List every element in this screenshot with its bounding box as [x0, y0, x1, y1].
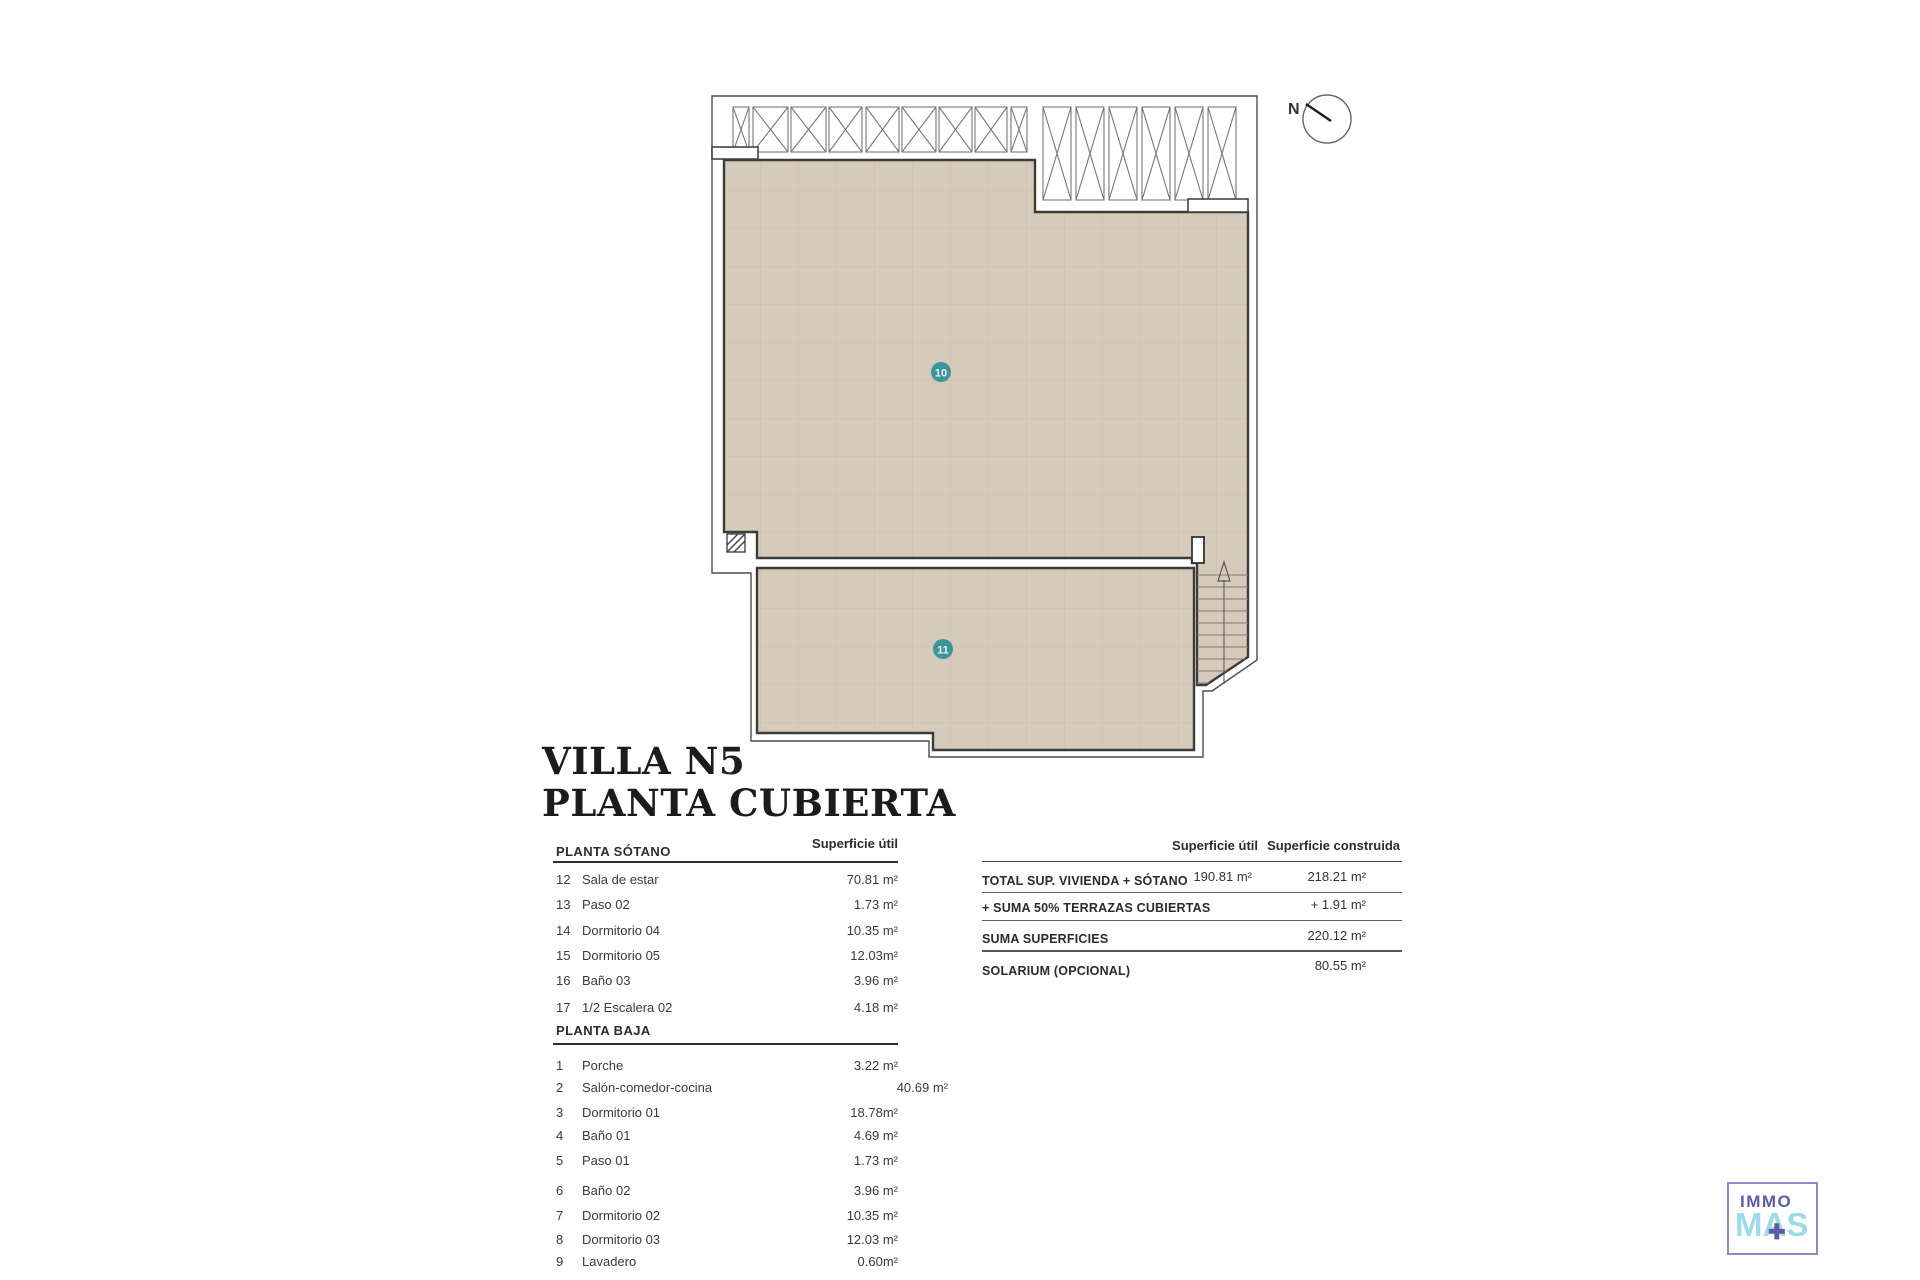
room-area: 70.81 m² [847, 872, 898, 887]
row-number: 5 [556, 1153, 563, 1168]
roof-area-11 [757, 568, 1194, 750]
room-name: Paso 01 [582, 1153, 630, 1168]
baja-section-header: PLANTA BAJA [556, 1023, 651, 1038]
table-row: 15 Dormitorio 05 12.03m² [553, 948, 898, 964]
summary-label: + SUMA 50% TERRAZAS CUBIERTAS [982, 901, 1210, 915]
summary-cons-value: 80.55 m² [1315, 958, 1366, 973]
summary-rule [982, 892, 1402, 893]
room-area: 0.60m² [858, 1254, 898, 1269]
summary-rule [982, 861, 1402, 862]
room-area: 4.69 m² [854, 1128, 898, 1143]
north-compass-icon: N [1288, 95, 1351, 143]
pergola-beams-left [733, 107, 1027, 152]
room-name: Paso 02 [582, 897, 630, 912]
summary-util-value: 190.81 m² [1193, 869, 1252, 884]
table-row: 7 Dormitorio 02 10.35 m² [553, 1208, 898, 1224]
room-name: Salón-comedor-cocina [582, 1080, 712, 1095]
table-row: 4 Baño 01 4.69 m² [553, 1128, 898, 1144]
roof-notch-top-right [1188, 199, 1248, 212]
room-name: Porche [582, 1058, 623, 1073]
summary-cons-value: 218.21 m² [1307, 869, 1366, 884]
summary-label: SUMA SUPERFICIES [982, 932, 1108, 946]
logo-plus-icon: ✚ [1768, 1220, 1786, 1245]
room-area: 3.96 m² [854, 1183, 898, 1198]
table-row: 1 Porche 3.22 m² [553, 1058, 898, 1074]
row-number: 6 [556, 1183, 563, 1198]
room-name: Sala de estar [582, 872, 659, 887]
roof-badge-11: 11 [933, 639, 953, 659]
table-row: 9 Lavadero 0.60m² [553, 1254, 898, 1270]
table-row: 13 Paso 02 1.73 m² [553, 897, 898, 913]
row-number: 16 [556, 973, 570, 988]
plan-sheet: 10 11 N VILLA N5 PLANTA CUBIERTA Superfi… [0, 0, 1920, 1280]
room-name: Dormitorio 03 [582, 1232, 660, 1247]
summary-cons-value: 220.12 m² [1307, 928, 1366, 943]
immomas-logo: IMMO MAS ✚ [1727, 1182, 1818, 1255]
summary-cons-value: + 1.91 m² [1311, 897, 1366, 912]
room-area: 10.35 m² [847, 923, 898, 938]
row-number: 7 [556, 1208, 563, 1223]
room-name: Baño 01 [582, 1128, 630, 1143]
row-number: 9 [556, 1254, 563, 1269]
sheet-title-line1: VILLA N5 [542, 740, 956, 782]
svg-text:10: 10 [935, 368, 947, 380]
roof-notch-top-left [712, 147, 758, 159]
room-name: Dormitorio 04 [582, 923, 660, 938]
sotano-section-header: PLANTA SÓTANO [556, 844, 671, 859]
room-area: 12.03 m² [847, 1232, 898, 1247]
room-name: Dormitorio 01 [582, 1105, 660, 1120]
row-number: 4 [556, 1128, 563, 1143]
baja-header-rule [553, 1043, 898, 1045]
summary-rule [982, 950, 1402, 952]
row-number: 1 [556, 1058, 563, 1073]
table-row: 5 Paso 01 1.73 m² [553, 1153, 898, 1169]
row-number: 15 [556, 948, 570, 963]
table-row: 14 Dormitorio 04 10.35 m² [553, 923, 898, 939]
room-name: Dormitorio 05 [582, 948, 660, 963]
room-name: Dormitorio 02 [582, 1208, 660, 1223]
summary-rule [982, 920, 1402, 921]
sheet-title: VILLA N5 PLANTA CUBIERTA [542, 740, 956, 824]
floor-plan-drawing: 10 11 N [0, 0, 1920, 1280]
summary-col-cons: Superficie construida [982, 838, 1400, 853]
table-row: 12 Sala de estar 70.81 m² [553, 872, 898, 888]
table-row: 6 Baño 02 3.96 m² [553, 1183, 898, 1199]
north-label: N [1288, 101, 1300, 118]
row-number: 8 [556, 1232, 563, 1247]
room-area: 18.78m² [850, 1105, 898, 1120]
table-row: 2 Salón-comedor-cocina 40.69 m² [553, 1080, 898, 1096]
summary-label: SOLARIUM (OPCIONAL) [982, 964, 1130, 978]
row-number: 12 [556, 872, 570, 887]
svg-text:11: 11 [937, 645, 949, 657]
row-number: 13 [556, 897, 570, 912]
room-area: 40.69 m² [897, 1080, 948, 1095]
room-name: Baño 02 [582, 1183, 630, 1198]
table-row: 16 Baño 03 3.96 m² [553, 973, 898, 989]
room-name: Baño 03 [582, 973, 630, 988]
sotano-header-rule [553, 861, 898, 863]
table-row: 8 Dormitorio 03 12.03 m² [553, 1232, 898, 1248]
room-area: 1.73 m² [854, 897, 898, 912]
row-number: 14 [556, 923, 570, 938]
room-name: Lavadero [582, 1254, 636, 1269]
room-name: 1/2 Escalera 02 [582, 1000, 672, 1015]
table-row: 3 Dormitorio 01 18.78m² [553, 1105, 898, 1121]
summary-label: TOTAL SUP. VIVIENDA + SÓTANO [982, 874, 1188, 888]
table-row: 17 1/2 Escalera 02 4.18 m² [553, 1000, 898, 1016]
room-area: 3.96 m² [854, 973, 898, 988]
chimney-symbol [727, 534, 745, 552]
roof-badge-10: 10 [931, 362, 951, 382]
room-area: 12.03m² [850, 948, 898, 963]
room-area: 1.73 m² [854, 1153, 898, 1168]
room-area: 10.35 m² [847, 1208, 898, 1223]
room-area: 3.22 m² [854, 1058, 898, 1073]
room-area: 4.18 m² [854, 1000, 898, 1015]
stair-slot [1192, 537, 1204, 563]
row-number: 17 [556, 1000, 570, 1015]
row-number: 3 [556, 1105, 563, 1120]
sheet-title-line2: PLANTA CUBIERTA [542, 782, 956, 824]
row-number: 2 [556, 1080, 563, 1095]
